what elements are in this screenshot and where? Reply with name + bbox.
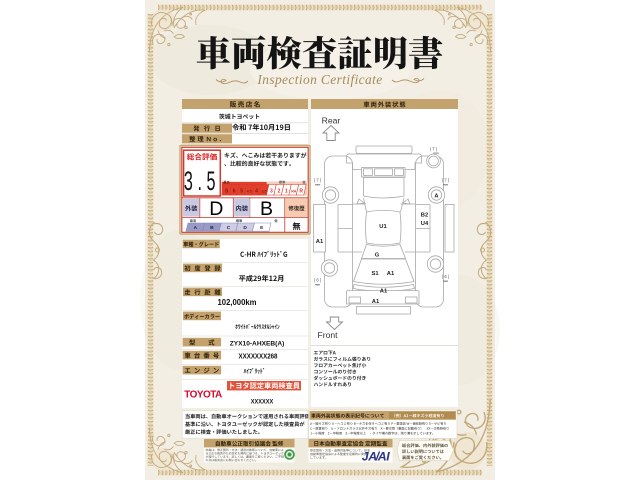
svg-text:3.5: 3.5 xyxy=(184,166,220,196)
svg-text:RA: RA xyxy=(291,189,297,193)
svg-text:JA/AI: JA/AI xyxy=(362,450,390,464)
svg-text:mm: mm xyxy=(443,182,449,186)
svg-text:A: A xyxy=(194,225,198,231)
svg-text:U4: U4 xyxy=(421,221,429,227)
svg-text:U1: U1 xyxy=(379,224,387,230)
svg-text:R: R xyxy=(299,188,303,194)
svg-text:2: 2 xyxy=(278,188,281,194)
svg-text:S1: S1 xyxy=(371,271,379,277)
svg-text:Front: Front xyxy=(317,330,338,340)
svg-text:4: 4 xyxy=(255,188,258,194)
svg-text:A1: A1 xyxy=(380,288,388,294)
svg-text:Rear: Rear xyxy=(322,116,341,126)
svg-text:5: 5 xyxy=(240,188,243,194)
svg-text:A1: A1 xyxy=(387,271,395,277)
svg-text:3: 3 xyxy=(270,188,273,194)
svg-text:D: D xyxy=(243,225,247,231)
svg-text:B2: B2 xyxy=(421,213,428,219)
svg-text:3.5: 3.5 xyxy=(262,189,267,193)
svg-text:ZYX10-AHXEB(A): ZYX10-AHXEB(A) xyxy=(230,340,285,347)
svg-text:1: 1 xyxy=(285,188,288,194)
svg-text:102,000km: 102,000km xyxy=(217,298,256,307)
svg-text:C: C xyxy=(227,225,231,231)
svg-text:XXXXXX: XXXXXX xyxy=(251,398,274,406)
svg-text:mm: mm xyxy=(315,282,321,286)
svg-text:XXXXXXX268: XXXXXXX268 xyxy=(239,353,278,360)
svg-text:TOYOTA: TOYOTA xyxy=(184,390,222,401)
svg-text:D: D xyxy=(209,198,223,220)
svg-text:G: G xyxy=(375,253,380,259)
svg-text:A1: A1 xyxy=(316,239,324,245)
svg-text:B: B xyxy=(210,225,214,231)
svg-text:B: B xyxy=(260,198,273,220)
svg-text:Inspection Certificate: Inspection Certificate xyxy=(256,72,382,87)
svg-text:mm: mm xyxy=(443,279,449,283)
svg-text:A1: A1 xyxy=(372,299,380,305)
svg-text:4.5: 4.5 xyxy=(247,189,252,193)
svg-text:mm: mm xyxy=(315,182,321,186)
svg-text:mm: mm xyxy=(433,151,439,155)
svg-text:6: 6 xyxy=(233,188,236,194)
